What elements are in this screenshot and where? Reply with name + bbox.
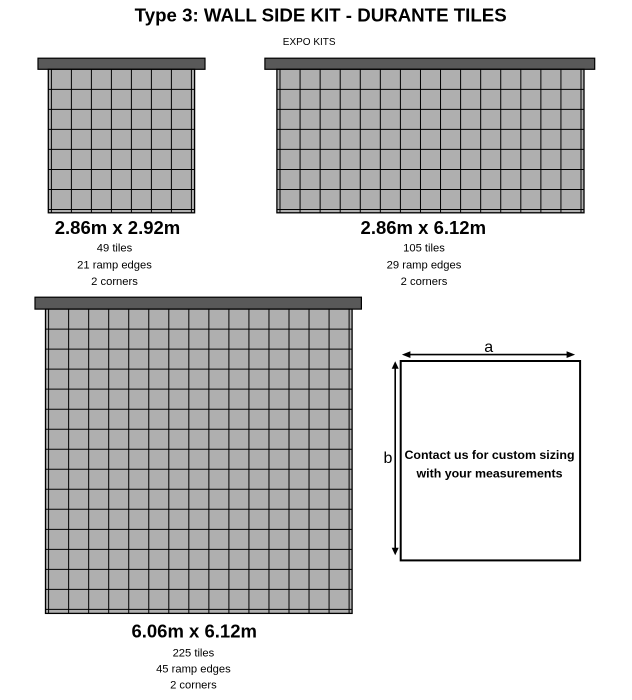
svg-text:Contact us for custom sizing: Contact us for custom sizing: [404, 448, 574, 462]
svg-text:2 corners: 2 corners: [170, 680, 217, 692]
svg-text:29 ramp edges: 29 ramp edges: [387, 260, 462, 272]
svg-text:b: b: [384, 450, 393, 467]
svg-text:45 ramp edges: 45 ramp edges: [156, 664, 231, 676]
svg-text:EXPO KITS: EXPO KITS: [283, 37, 336, 48]
svg-text:21 ramp edges: 21 ramp edges: [77, 260, 152, 272]
svg-text:225 tiles: 225 tiles: [173, 647, 215, 659]
svg-text:2 corners: 2 corners: [401, 276, 448, 288]
svg-text:2.86m x 2.92m: 2.86m x 2.92m: [55, 217, 180, 238]
svg-text:2 corners: 2 corners: [91, 276, 138, 288]
svg-text:2.86m x 6.12m: 2.86m x 6.12m: [361, 217, 486, 238]
svg-text:49 tiles: 49 tiles: [97, 242, 133, 254]
svg-text:105 tiles: 105 tiles: [403, 242, 445, 254]
svg-text:Type 3: WALL SIDE KIT - DURANT: Type 3: WALL SIDE KIT - DURANTE TILES: [135, 5, 507, 26]
svg-text:with your measurements: with your measurements: [416, 466, 563, 480]
svg-text:6.06m x 6.12m: 6.06m x 6.12m: [131, 621, 256, 642]
svg-text:a: a: [484, 339, 493, 356]
